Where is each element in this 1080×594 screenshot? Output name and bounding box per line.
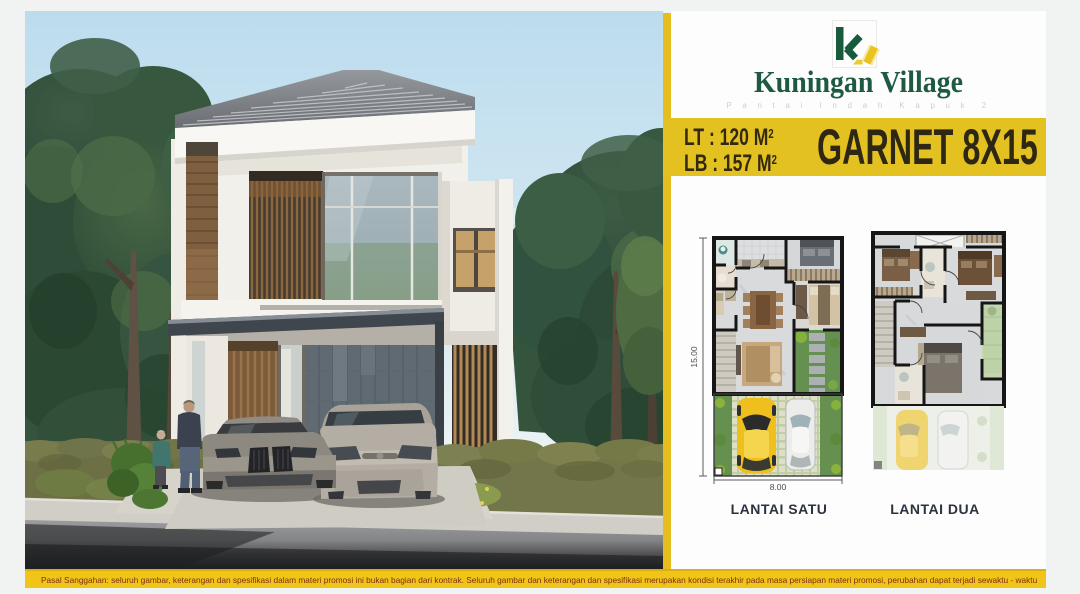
svg-text:15.00: 15.00 xyxy=(690,346,699,368)
svg-text:8.00: 8.00 xyxy=(770,482,787,492)
